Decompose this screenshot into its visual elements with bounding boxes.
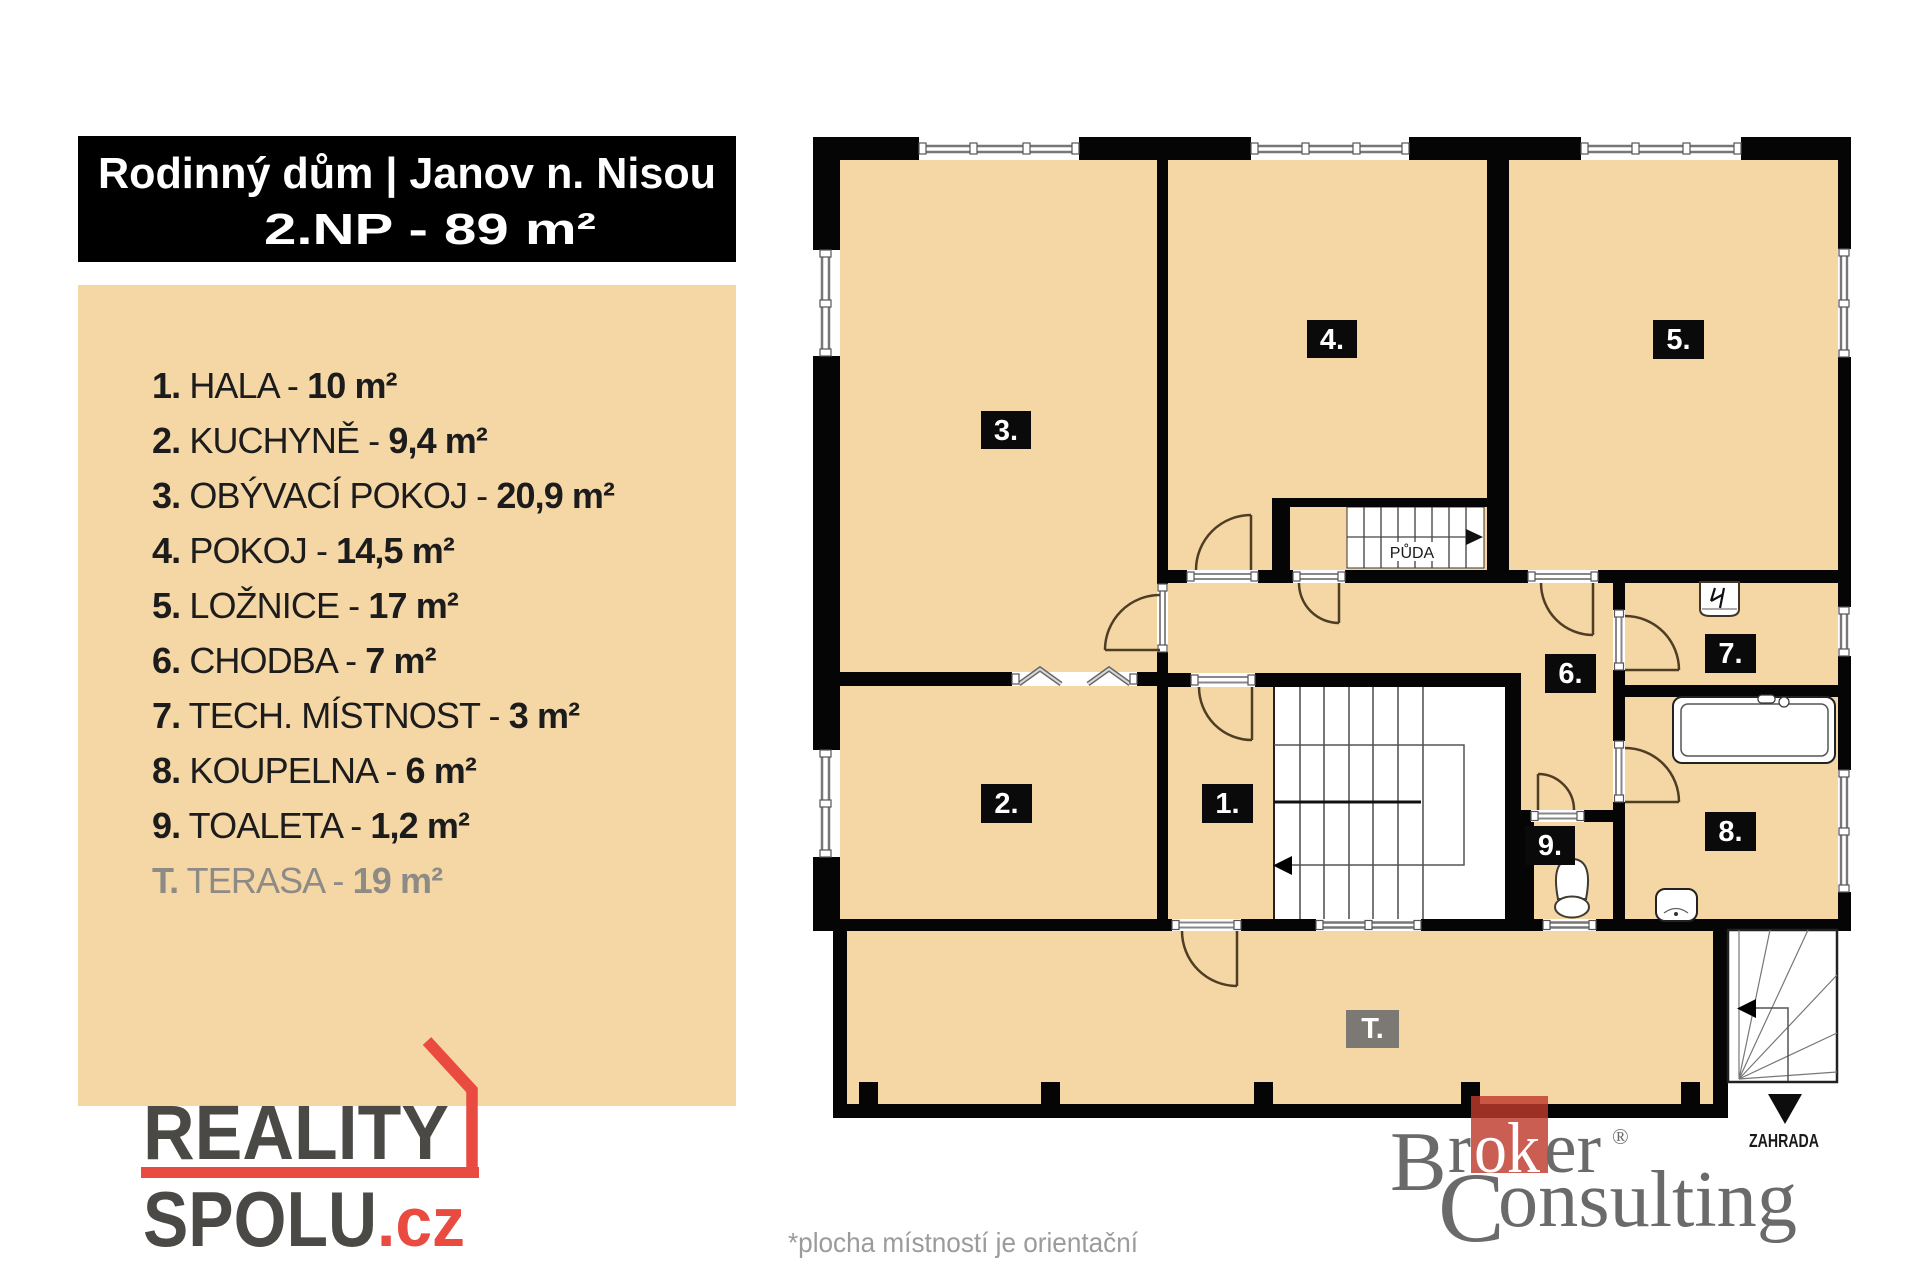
svg-text:T.: T. bbox=[1361, 1013, 1384, 1045]
svg-text:PŮDA: PŮDA bbox=[1390, 543, 1435, 562]
svg-text:7.: 7. bbox=[1718, 638, 1742, 670]
svg-text:2.: 2. bbox=[994, 788, 1018, 820]
svg-text:8.: 8. bbox=[1718, 816, 1742, 848]
svg-text:REALITY: REALITY bbox=[143, 1090, 449, 1176]
svg-text:4.: 4. bbox=[1320, 324, 1344, 356]
svg-text:5.: 5. bbox=[1666, 324, 1690, 356]
svg-text:Rodinný dům | Janov n. Nisou: Rodinný dům | Janov n. Nisou bbox=[98, 149, 716, 199]
svg-text:SPOLU: SPOLU bbox=[143, 1175, 377, 1263]
svg-text:6.: 6. bbox=[1558, 658, 1582, 690]
svg-text:1.: 1. bbox=[1215, 788, 1239, 820]
svg-text:.cz: .cz bbox=[377, 1183, 465, 1261]
svg-text:onsulting: onsulting bbox=[1498, 1156, 1797, 1244]
svg-text:C: C bbox=[1438, 1152, 1505, 1263]
svg-text:®: ® bbox=[1612, 1124, 1629, 1149]
svg-text:3.: 3. bbox=[994, 415, 1018, 447]
svg-text:2.NP - 89 m²: 2.NP - 89 m² bbox=[264, 205, 596, 254]
svg-text:ZAHRADA: ZAHRADA bbox=[1749, 1131, 1819, 1151]
svg-text:9.: 9. bbox=[1538, 830, 1562, 862]
svg-text:*plocha místností je orientačn: *plocha místností je orientační bbox=[788, 1227, 1138, 1258]
